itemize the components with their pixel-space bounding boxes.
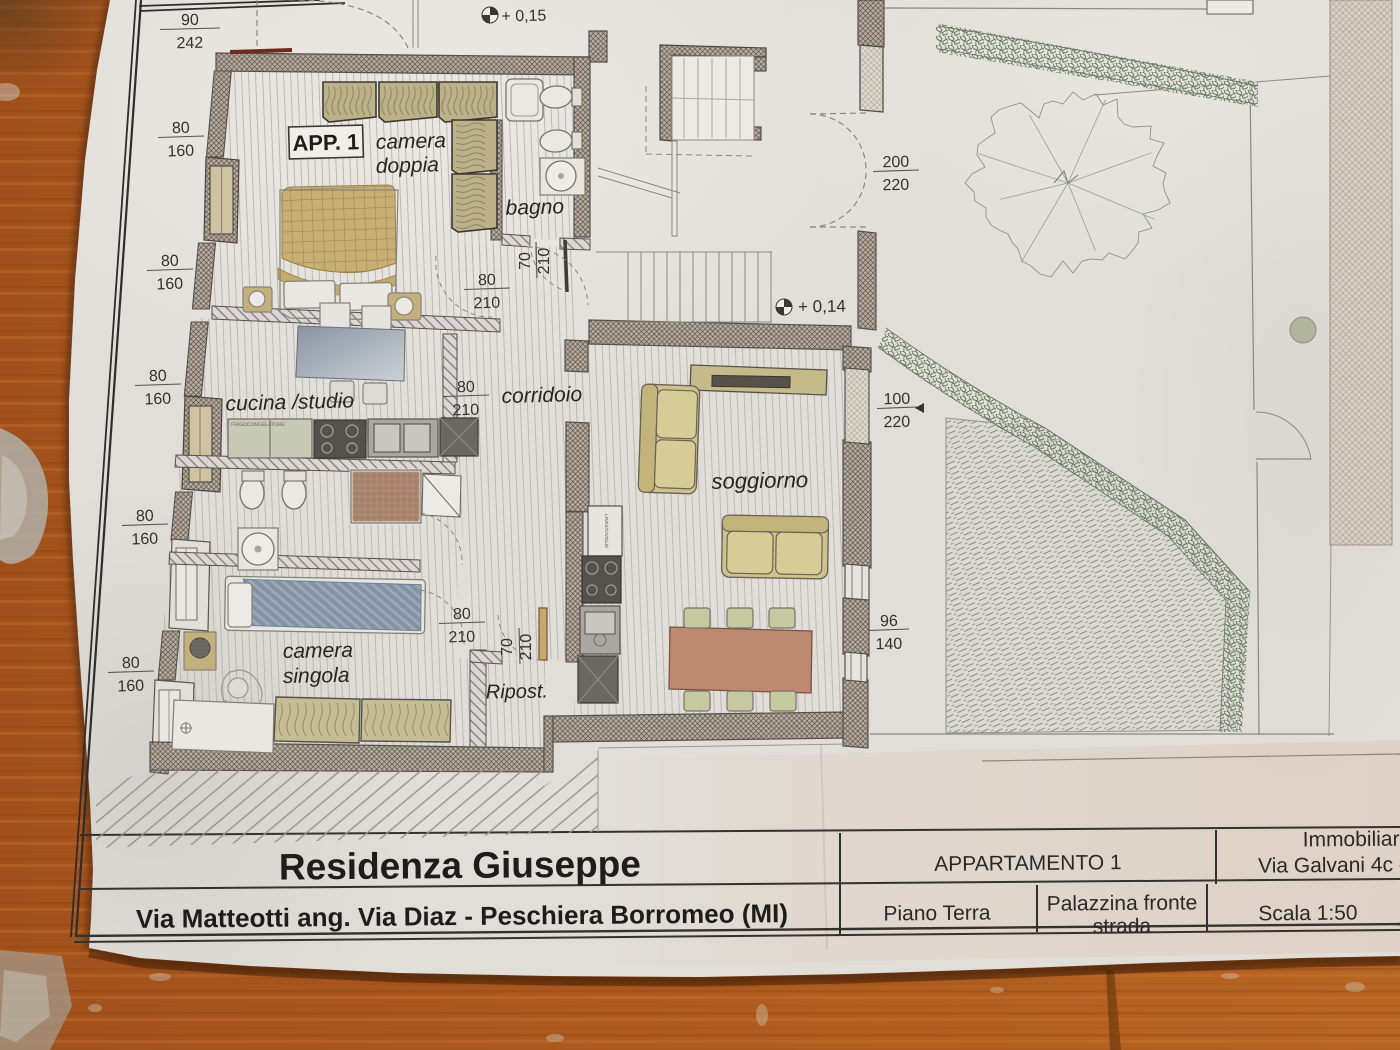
svg-text:100: 100 [883, 391, 910, 408]
svg-text:140: 140 [875, 636, 902, 653]
svg-text:242: 242 [176, 35, 203, 52]
svg-text:APPARTAMENTO 1: APPARTAMENTO 1 [934, 851, 1122, 876]
svg-text:160: 160 [131, 531, 158, 549]
svg-text:+ 0,14: + 0,14 [798, 297, 846, 317]
svg-text:90: 90 [181, 12, 199, 29]
svg-text:camera: camera [283, 639, 353, 663]
svg-text:160: 160 [117, 678, 144, 696]
svg-text:doppia: doppia [376, 153, 440, 178]
svg-text:Via Matteotti ang. Via Diaz -: Via Matteotti ang. Via Diaz - Peschiera … [136, 898, 788, 934]
svg-text:80: 80 [172, 120, 190, 138]
svg-text:70: 70 [517, 252, 534, 270]
svg-text:210: 210 [452, 402, 479, 420]
svg-text:210: 210 [536, 248, 553, 275]
svg-text:80: 80 [161, 253, 179, 271]
svg-text:Ripost.: Ripost. [486, 680, 549, 703]
svg-text:singola: singola [283, 664, 350, 688]
svg-text:cucina /studio: cucina /studio [225, 389, 354, 415]
svg-text:Scala 1:50: Scala 1:50 [1258, 902, 1357, 926]
svg-text:strada: strada [1093, 915, 1152, 939]
svg-text:80: 80 [457, 379, 475, 396]
svg-text:Palazzina fronte: Palazzina fronte [1047, 891, 1198, 915]
svg-text:160: 160 [156, 276, 183, 294]
svg-text:Immobiliare: Immobiliare [1303, 828, 1400, 852]
svg-text:160: 160 [167, 143, 194, 161]
svg-text:200: 200 [882, 154, 909, 171]
svg-text:Piano Terra: Piano Terra [883, 902, 991, 926]
svg-text:210: 210 [473, 295, 500, 313]
svg-text:80: 80 [122, 655, 140, 673]
svg-text:160: 160 [144, 391, 171, 409]
svg-text:220: 220 [882, 177, 909, 194]
svg-text:soggiorno: soggiorno [711, 467, 808, 494]
svg-text:corridoio: corridoio [501, 383, 582, 408]
svg-text:Via Galvani 4c -: Via Galvani 4c - [1258, 853, 1400, 877]
svg-text:camera: camera [376, 129, 447, 154]
svg-text:80: 80 [478, 272, 496, 289]
svg-text:APP. 1: APP. 1 [292, 129, 359, 156]
svg-text:210: 210 [518, 634, 535, 661]
svg-text:220: 220 [883, 414, 910, 431]
svg-text:bagno: bagno [505, 195, 564, 220]
svg-text:70: 70 [499, 638, 516, 656]
svg-text:LAVASTOVIGLIE: LAVASTOVIGLIE [604, 514, 609, 549]
svg-text:FRIGOCONGELATORE: FRIGOCONGELATORE [231, 422, 285, 428]
svg-text:96: 96 [880, 613, 898, 630]
svg-text:80: 80 [136, 508, 154, 526]
svg-text:Residenza Giuseppe: Residenza Giuseppe [279, 843, 641, 887]
svg-text:210: 210 [448, 629, 475, 647]
svg-text:80: 80 [149, 368, 167, 386]
svg-text:+ 0,15: + 0,15 [501, 8, 546, 26]
svg-text:80: 80 [453, 606, 471, 623]
